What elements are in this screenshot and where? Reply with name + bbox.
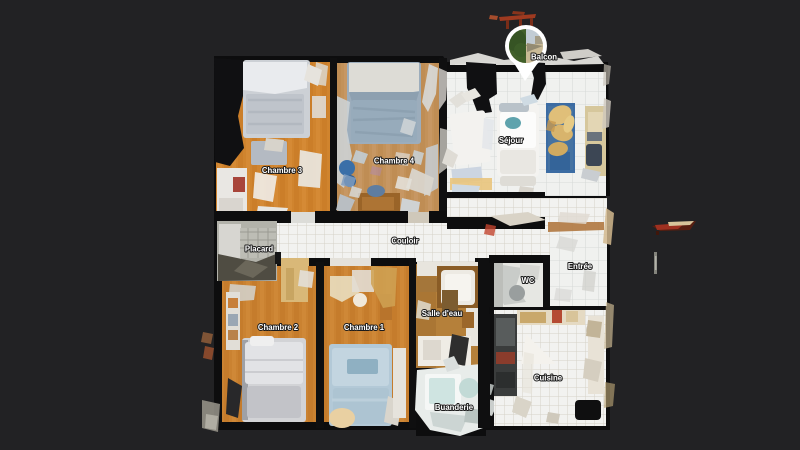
svg-text:Chambre 1: Chambre 1 bbox=[344, 323, 385, 332]
svg-text:Balcon: Balcon bbox=[531, 53, 557, 62]
svg-text:Chambre 3: Chambre 3 bbox=[262, 166, 303, 175]
svg-text:Cuisine: Cuisine bbox=[534, 374, 563, 383]
svg-text:Séjour: Séjour bbox=[499, 136, 523, 145]
svg-text:Salle d'eau: Salle d'eau bbox=[422, 309, 463, 318]
svg-text:WC: WC bbox=[522, 276, 535, 285]
svg-text:Chambre 2: Chambre 2 bbox=[258, 323, 299, 332]
svg-text:Chambre 4: Chambre 4 bbox=[374, 157, 415, 166]
svg-text:Entrée: Entrée bbox=[568, 262, 593, 271]
svg-text:Placard: Placard bbox=[245, 245, 273, 254]
svg-text:Buanderie: Buanderie bbox=[435, 403, 474, 412]
svg-text:Couloir: Couloir bbox=[391, 237, 418, 246]
